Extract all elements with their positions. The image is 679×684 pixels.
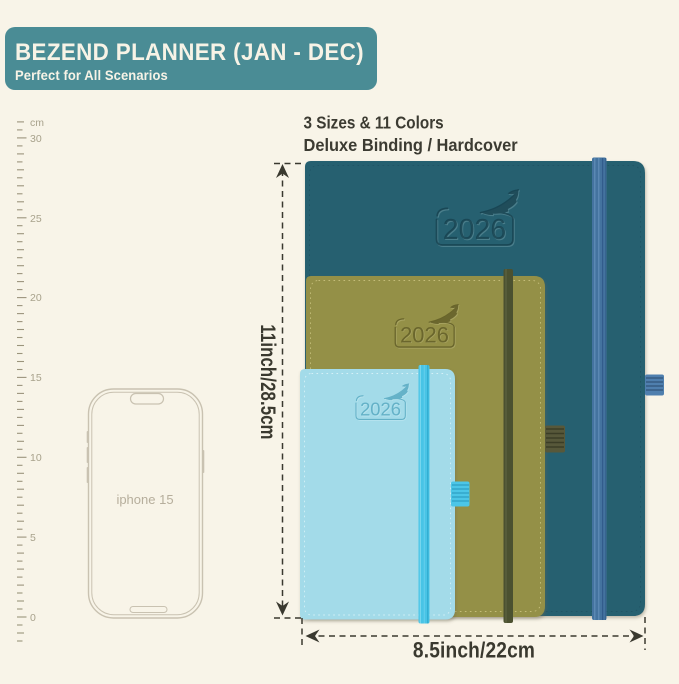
svg-text:30: 30 [30,133,42,145]
svg-text:Perfect for All Scenarios: Perfect for All Scenarios [15,68,168,84]
svg-text:iphone 15: iphone 15 [116,492,173,507]
svg-text:3 Sizes & 11 Colors: 3 Sizes & 11 Colors [304,114,444,133]
svg-text:11inch/28.5cm: 11inch/28.5cm [255,324,278,439]
svg-text:15: 15 [30,372,42,384]
svg-text:10: 10 [30,452,42,464]
svg-text:0: 0 [30,612,36,624]
svg-text:8.5inch/22cm: 8.5inch/22cm [413,638,535,663]
svg-text:BEZEND PLANNER (JAN - DEC): BEZEND PLANNER (JAN - DEC) [15,38,364,65]
svg-text:Deluxe Binding / Hardcover: Deluxe Binding / Hardcover [304,136,519,156]
svg-text:20: 20 [30,292,42,304]
svg-text:cm: cm [30,117,44,129]
svg-text:5: 5 [30,532,36,544]
svg-text:25: 25 [30,213,42,225]
